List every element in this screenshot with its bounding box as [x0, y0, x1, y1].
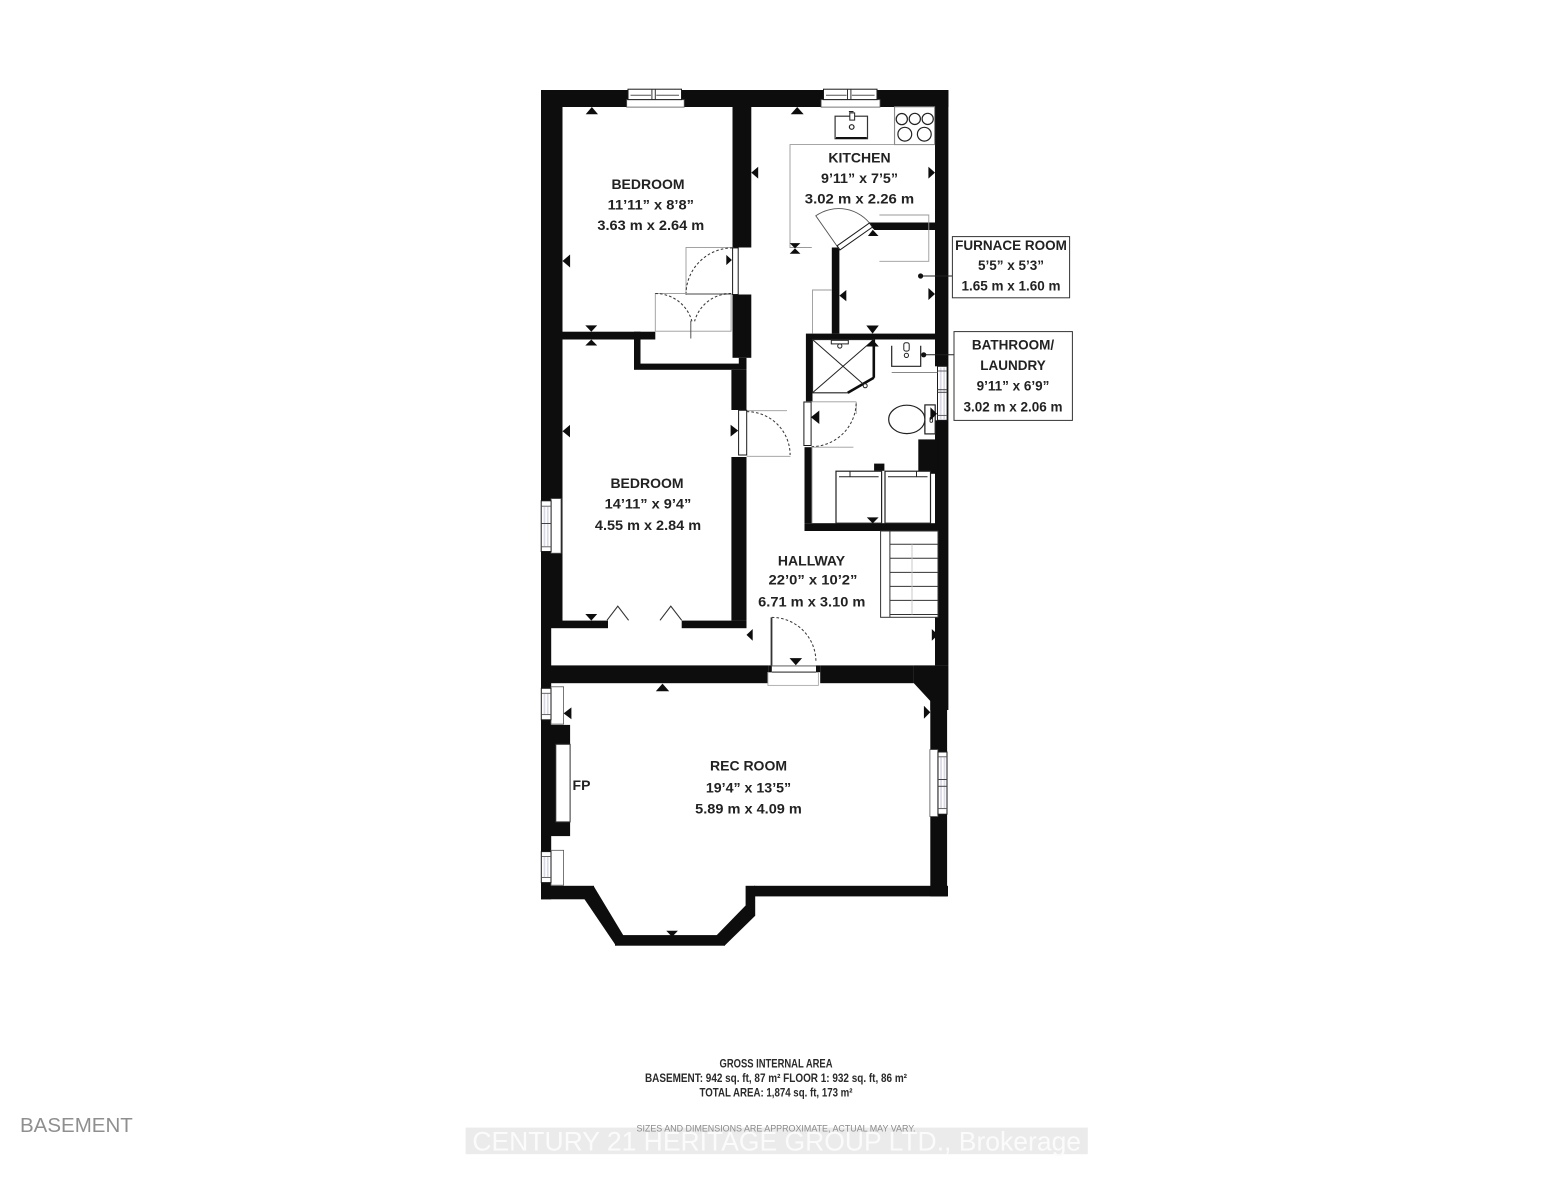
svg-text:HALLWAY: HALLWAY — [778, 552, 846, 568]
svg-text:BEDROOM: BEDROOM — [611, 176, 684, 192]
svg-text:3.02 m x 2.06 m: 3.02 m x 2.06 m — [963, 400, 1062, 415]
svg-text:6.71 m x 3.10 m: 6.71 m x 3.10 m — [758, 593, 865, 609]
svg-text:BATHROOM/: BATHROOM/ — [972, 338, 1054, 353]
svg-text:1.65 m x 1.60 m: 1.65 m x 1.60 m — [961, 279, 1060, 294]
svg-text:22’0” x 10’2”: 22’0” x 10’2” — [769, 572, 858, 588]
svg-text:5.89 m x 4.09 m: 5.89 m x 4.09 m — [695, 800, 802, 816]
svg-text:FP: FP — [573, 777, 591, 793]
svg-text:FURNACE ROOM: FURNACE ROOM — [955, 238, 1067, 253]
svg-text:19’4” x 13’5”: 19’4” x 13’5” — [706, 780, 791, 796]
svg-text:KITCHEN: KITCHEN — [828, 150, 890, 166]
svg-text:BASEMENT: 942 sq. ft, 87 m² FL: BASEMENT: 942 sq. ft, 87 m² FLOOR 1: 932… — [645, 1071, 907, 1085]
svg-text:5’5” x 5’3”: 5’5” x 5’3” — [978, 258, 1044, 273]
svg-text:4.55 m x 2.84 m: 4.55 m x 2.84 m — [595, 517, 701, 533]
svg-text:3.63 m x 2.64 m: 3.63 m x 2.64 m — [597, 217, 704, 233]
svg-text:9’11” x 7’5”: 9’11” x 7’5” — [821, 170, 898, 186]
svg-text:14’11” x 9’4”: 14’11” x 9’4” — [605, 496, 692, 512]
svg-text:TOTAL AREA: 1,874 sq. ft, 173: TOTAL AREA: 1,874 sq. ft, 173 m² — [700, 1085, 853, 1099]
svg-text:REC ROOM: REC ROOM — [710, 757, 787, 773]
svg-text:LAUNDRY: LAUNDRY — [980, 358, 1046, 373]
svg-text:BASEMENT: BASEMENT — [20, 1114, 133, 1137]
svg-text:9’11” x 6’9”: 9’11” x 6’9” — [977, 379, 1050, 394]
svg-text:3.02 m x 2.26 m: 3.02 m x 2.26 m — [805, 191, 914, 207]
svg-text:BEDROOM: BEDROOM — [610, 475, 683, 491]
svg-text:GROSS INTERNAL AREA: GROSS INTERNAL AREA — [720, 1056, 833, 1070]
svg-text:11’11” x 8’8”: 11’11” x 8’8” — [608, 197, 694, 213]
svg-text:SIZES AND DIMENSIONS ARE APPRO: SIZES AND DIMENSIONS ARE APPROXIMATE, AC… — [637, 1123, 916, 1134]
